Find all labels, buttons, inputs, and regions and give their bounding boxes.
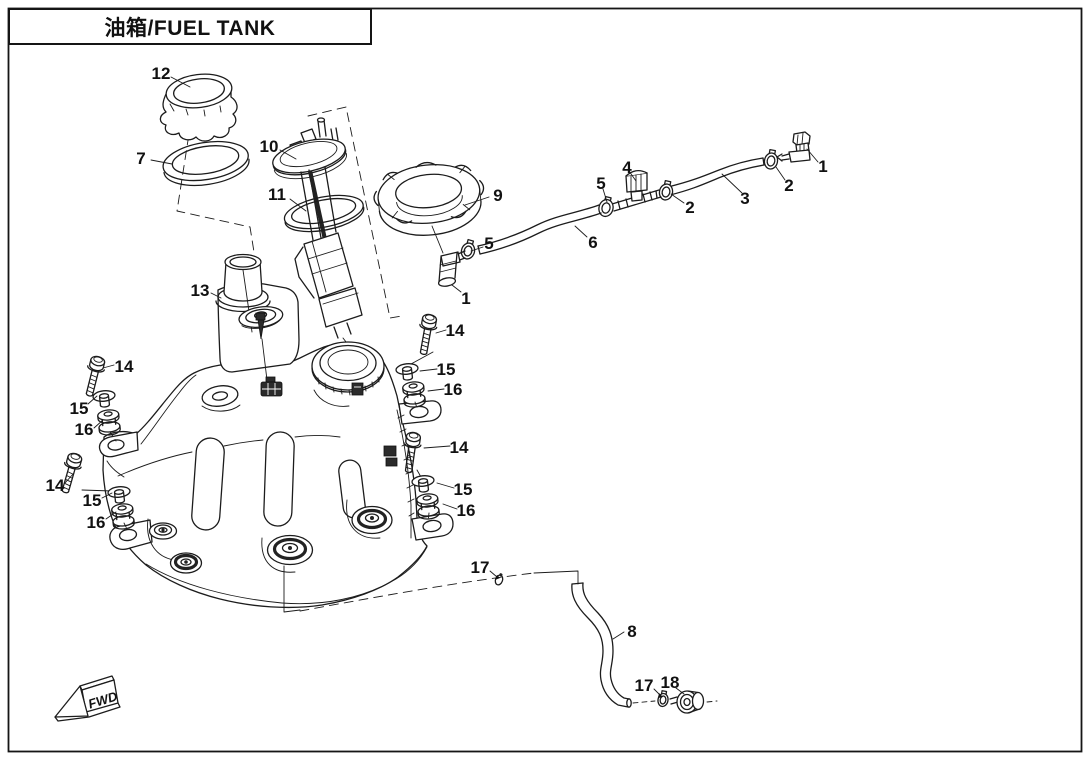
fuel-cap-12 [160, 71, 237, 141]
fuel-hose-assembly [438, 132, 810, 287]
part-label-13: 13 [191, 281, 210, 300]
part-label-16: 16 [457, 501, 476, 520]
part-label-9: 9 [493, 186, 502, 205]
fwd-arrow: FWD [55, 676, 120, 721]
title-box: 油箱/FUEL TANK [8, 8, 372, 45]
hose-clamp-2-right [763, 149, 779, 170]
check-valve-18 [670, 691, 704, 713]
part-label-1: 1 [461, 289, 470, 308]
page: 油箱/FUEL TANK [0, 0, 1090, 760]
part-label-15: 15 [83, 491, 102, 510]
part-label-12: 12 [152, 64, 171, 83]
hose-clamp-2-mid [658, 180, 675, 201]
part-label-1: 1 [818, 157, 827, 176]
part-label-2: 2 [685, 198, 694, 217]
sensor-screw-head [256, 313, 265, 320]
part-label-15: 15 [437, 360, 456, 379]
side-fitting [384, 446, 397, 466]
ring-to-elbow-line [432, 226, 443, 253]
outlet-boss-1 [150, 523, 177, 539]
part-label-14: 14 [115, 357, 134, 376]
diagram-title: 油箱/FUEL TANK [105, 12, 276, 42]
part-label-5: 5 [596, 174, 605, 193]
part-labels-layer: 1271011945232156113141516141516141516141… [46, 64, 828, 695]
elbow-fitting-1-mid [438, 251, 465, 287]
part-label-18: 18 [661, 673, 680, 692]
part-label-7: 7 [136, 149, 145, 168]
hose-clamp-17-lower [657, 690, 670, 707]
part-label-16: 16 [444, 380, 463, 399]
gasket-ring-7 [160, 136, 252, 191]
part-label-6: 6 [588, 233, 597, 252]
vent-fitting-top [352, 383, 363, 395]
part-label-17: 17 [471, 558, 490, 577]
part-label-4: 4 [622, 158, 632, 177]
part-label-10: 10 [260, 137, 279, 156]
part-label-11: 11 [268, 185, 286, 204]
outlet-boss-2 [171, 553, 202, 573]
mount-bolt-set-right-upper [396, 313, 439, 408]
elbow-fitting-1-top [777, 132, 810, 162]
part-label-15: 15 [454, 480, 473, 499]
part-label-3: 3 [740, 189, 749, 208]
lock-ring-9 [371, 157, 488, 241]
part-label-5: 5 [484, 234, 493, 253]
part-label-17: 17 [635, 676, 654, 695]
seal-ring-11 [282, 190, 367, 238]
part-label-14: 14 [446, 321, 465, 340]
part-label-16: 16 [75, 420, 94, 439]
part-label-2: 2 [784, 176, 793, 195]
parts-diagram: FWD [0, 0, 1090, 760]
fuel-tank-body [99, 255, 453, 608]
part-label-14: 14 [46, 476, 65, 495]
part-label-14: 14 [450, 438, 469, 457]
part-label-8: 8 [627, 622, 636, 641]
part-label-15: 15 [70, 399, 89, 418]
part-label-16: 16 [87, 513, 106, 532]
